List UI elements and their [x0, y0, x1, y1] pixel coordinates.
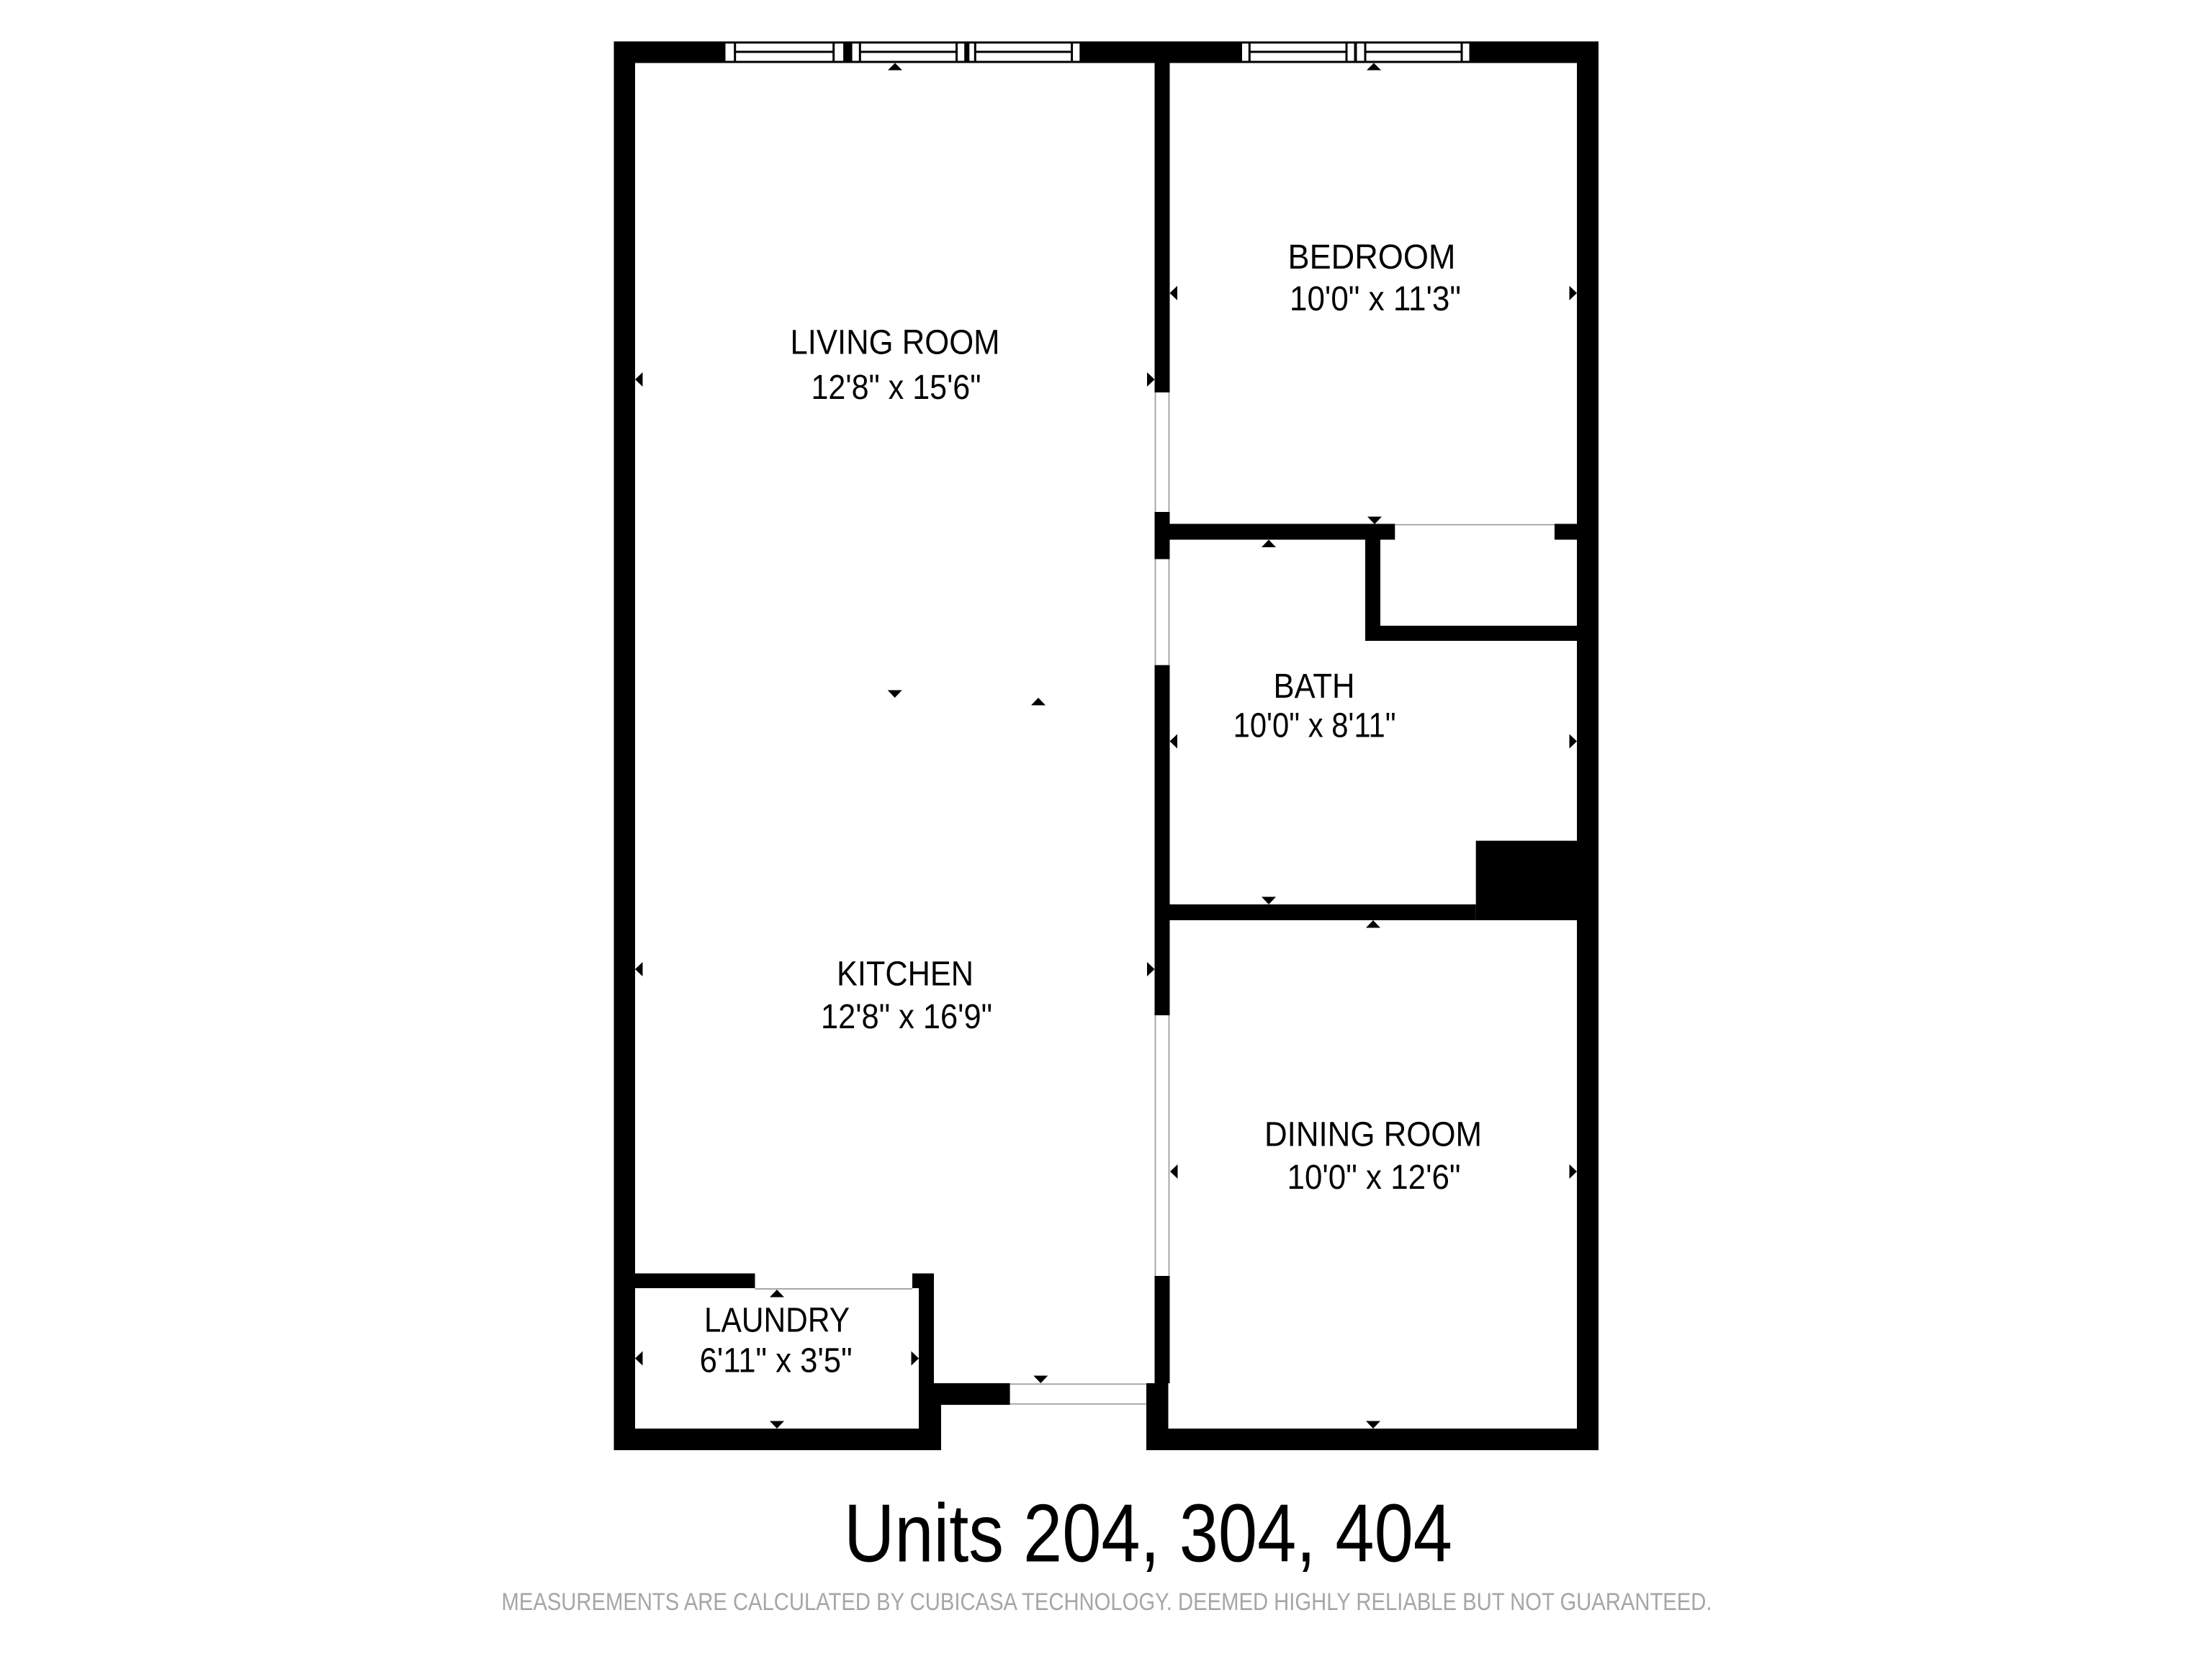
- svg-text:12'8" x 16'9": 12'8" x 16'9": [821, 998, 992, 1036]
- svg-text:Units 204, 304, 404: Units 204, 304, 404: [844, 1488, 1452, 1580]
- svg-text:KITCHEN: KITCHEN: [837, 955, 974, 993]
- svg-text:LAUNDRY: LAUNDRY: [704, 1302, 850, 1340]
- svg-text:6'11" x 3'5": 6'11" x 3'5": [700, 1342, 853, 1380]
- svg-text:BATH: BATH: [1274, 667, 1355, 706]
- svg-text:10'0" x 8'11": 10'0" x 8'11": [1233, 707, 1396, 745]
- svg-text:DINING ROOM: DINING ROOM: [1264, 1116, 1482, 1154]
- svg-text:MEASUREMENTS ARE CALCULATED BY: MEASUREMENTS ARE CALCULATED BY CUBICASA …: [502, 1588, 1712, 1616]
- svg-text:12'8" x 15'6": 12'8" x 15'6": [811, 369, 981, 407]
- svg-text:10'0" x 12'6": 10'0" x 12'6": [1287, 1159, 1461, 1197]
- svg-text:BEDROOM: BEDROOM: [1288, 238, 1456, 276]
- svg-text:10'0" x 11'3": 10'0" x 11'3": [1290, 280, 1461, 318]
- svg-text:LIVING ROOM: LIVING ROOM: [791, 324, 1000, 362]
